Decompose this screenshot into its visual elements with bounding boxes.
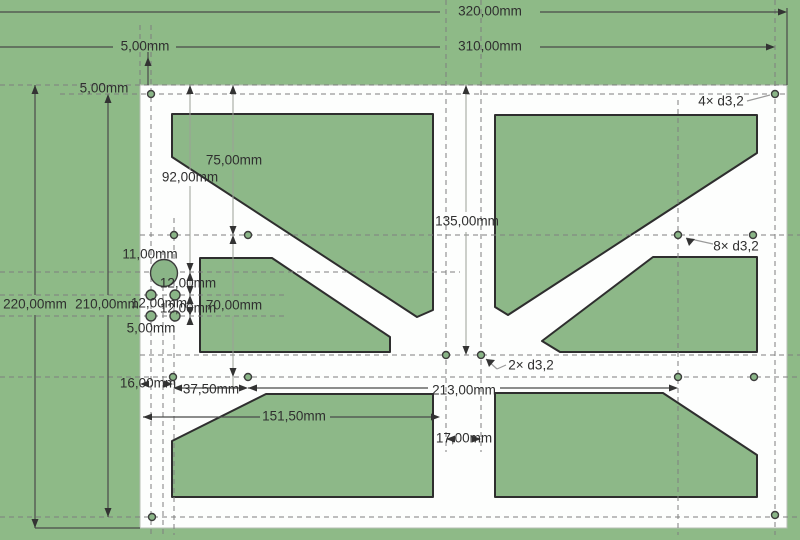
- drill-hole: [443, 352, 450, 359]
- dimension-label: 12,00mm: [160, 276, 216, 291]
- cad-drawing-viewport[interactable]: 320,00mm310,00mm5,00mm5,00mm4× d3,292,00…: [0, 0, 800, 540]
- dimension-label: 310,00mm: [458, 39, 522, 54]
- dimension-label: 37,50mm: [183, 382, 239, 397]
- drill-hole: [171, 232, 178, 239]
- dimension-label: 16,00mm: [120, 376, 176, 391]
- drill-hole: [245, 232, 252, 239]
- dimension-label: 2× d3,2: [508, 358, 553, 373]
- dimension-label: 213,00mm: [432, 383, 496, 398]
- dimension-label: 4× d3,2: [698, 94, 743, 109]
- dimension-label: 11,00mm: [122, 247, 177, 262]
- drill-hole: [245, 374, 252, 381]
- dimension-label: 5,00mm: [121, 39, 170, 54]
- dimension-label: 5,00mm: [80, 81, 129, 96]
- dimension-label: 75,00mm: [206, 153, 262, 168]
- dimension-label: 210,00mm: [75, 297, 139, 312]
- dimension-label: 8× d3,2: [713, 239, 758, 254]
- dimension-label: 17,00mm: [436, 431, 492, 446]
- dimension-label: 151,50mm: [262, 409, 326, 424]
- drill-hole: [675, 374, 682, 381]
- drill-hole: [751, 374, 758, 381]
- dimension-label: 92,00mm: [162, 170, 218, 185]
- dimension-label: 320,00mm: [458, 4, 522, 19]
- technical-drawing: 320,00mm310,00mm5,00mm5,00mm4× d3,292,00…: [0, 0, 800, 540]
- drill-hole: [146, 311, 156, 321]
- dimension-label: 5,00mm: [127, 321, 176, 336]
- drill-hole: [478, 352, 485, 359]
- dimension-label: 70,00mm: [206, 298, 262, 313]
- drill-hole: [772, 512, 779, 519]
- drill-hole: [772, 91, 779, 98]
- drill-hole: [149, 514, 156, 521]
- dimension-label: 135,00mm: [435, 214, 499, 229]
- dimension-label: 220,00mm: [3, 297, 67, 312]
- drill-hole: [750, 232, 757, 239]
- drill-hole: [675, 232, 682, 239]
- drill-hole: [148, 91, 155, 98]
